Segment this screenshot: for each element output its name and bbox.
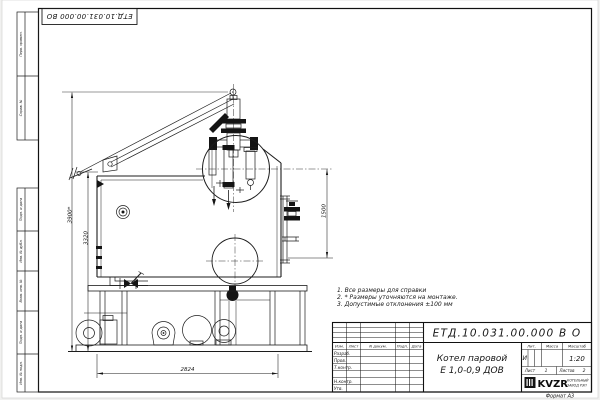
dim-base-length: 2824	[181, 367, 195, 373]
col-list: Лист	[348, 344, 359, 349]
note-line: 1. Все размеры для справки	[337, 287, 426, 294]
sheet-label: Лист	[524, 368, 536, 373]
lit-value: И	[522, 355, 527, 362]
company-line2: ЗАВОД РЭП	[567, 384, 587, 388]
row-ncontrol: Н.контр.	[334, 379, 353, 384]
side-col-label: Справ. №	[19, 99, 23, 116]
row-checked: Пров.	[334, 358, 346, 363]
col-izm: Изм.	[335, 344, 344, 349]
company-logo-text: KVZR	[538, 379, 569, 390]
col-date: Дата	[411, 344, 423, 349]
side-col-label: Инв. № дубл.	[19, 239, 23, 262]
note-line: 3. Допустимые отклонения ±100 мм	[337, 301, 453, 308]
dim-overall-height: 3900*	[68, 206, 74, 223]
mass-label: Масса	[546, 344, 559, 349]
side-col-label: Инв. № подл.	[19, 361, 23, 384]
row-developed: Разраб.	[334, 351, 350, 356]
row-tcontrol: Т.контр.	[334, 365, 352, 370]
drawing-sheet: Перв. примен. Справ. № Подп. и дата Инв.…	[0, 0, 600, 400]
row-approved: Утв.	[334, 386, 343, 391]
side-col-label: Подп. и дата	[19, 321, 23, 344]
sheets-value: 2	[583, 368, 586, 374]
sheets-label: Листов	[559, 368, 576, 373]
company-line1: КОТЕЛЬНЫЙ	[567, 378, 589, 383]
titleblock-designation: ЕТД.10.031.00.000 В О	[433, 328, 582, 340]
note-line: 2. * Размеры уточняются на монтаже.	[337, 294, 458, 301]
boiler-drawing-svg: Перв. примен. Справ. № Подп. и дата Инв.…	[0, 0, 600, 400]
scale-label: Масштаб	[568, 344, 587, 349]
scale-value: 1:20	[569, 355, 585, 363]
col-doc: N докум.	[369, 344, 387, 349]
lit-label: Лит.	[526, 344, 536, 349]
side-col-label: Перв. примен.	[19, 31, 23, 56]
dim-drum-height: 3320	[84, 231, 90, 245]
side-col-label: Подп. и дата	[19, 198, 23, 221]
col-sign: Подп.	[397, 344, 409, 349]
doc-name-line2: Е 1,0-0,9 ДОВ	[440, 366, 504, 376]
dim-right-height: 1500	[322, 204, 328, 218]
doc-name-line1: Котел паровой	[437, 354, 508, 364]
format-note: Формат А3	[546, 394, 574, 400]
sheet-value: 1	[545, 368, 548, 374]
corner-designation-text: ЕТД.10.031.00.000 ВО	[46, 12, 132, 20]
side-col-label: Взам. инв. №	[19, 279, 23, 302]
